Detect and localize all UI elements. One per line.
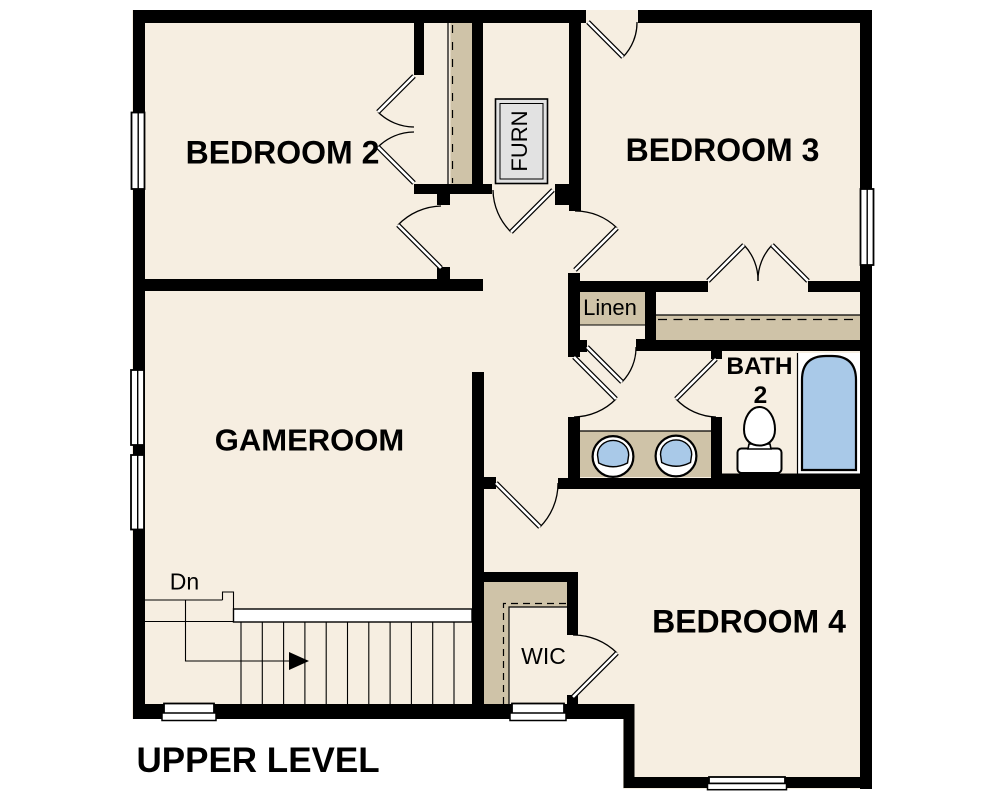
svg-text:FURN: FURN	[507, 110, 532, 171]
svg-text:Dn: Dn	[170, 569, 199, 595]
svg-text:BATH: BATH	[726, 353, 792, 380]
svg-text:BEDROOM 2: BEDROOM 2	[186, 135, 380, 171]
svg-text:UPPER LEVEL: UPPER LEVEL	[137, 741, 380, 780]
svg-text:GAMEROOM: GAMEROOM	[215, 423, 404, 458]
svg-text:Linen: Linen	[583, 295, 637, 320]
svg-text:WIC: WIC	[521, 643, 566, 669]
svg-text:BEDROOM 3: BEDROOM 3	[626, 132, 820, 168]
svg-text:2: 2	[754, 382, 768, 409]
svg-text:BEDROOM 4: BEDROOM 4	[652, 604, 846, 640]
